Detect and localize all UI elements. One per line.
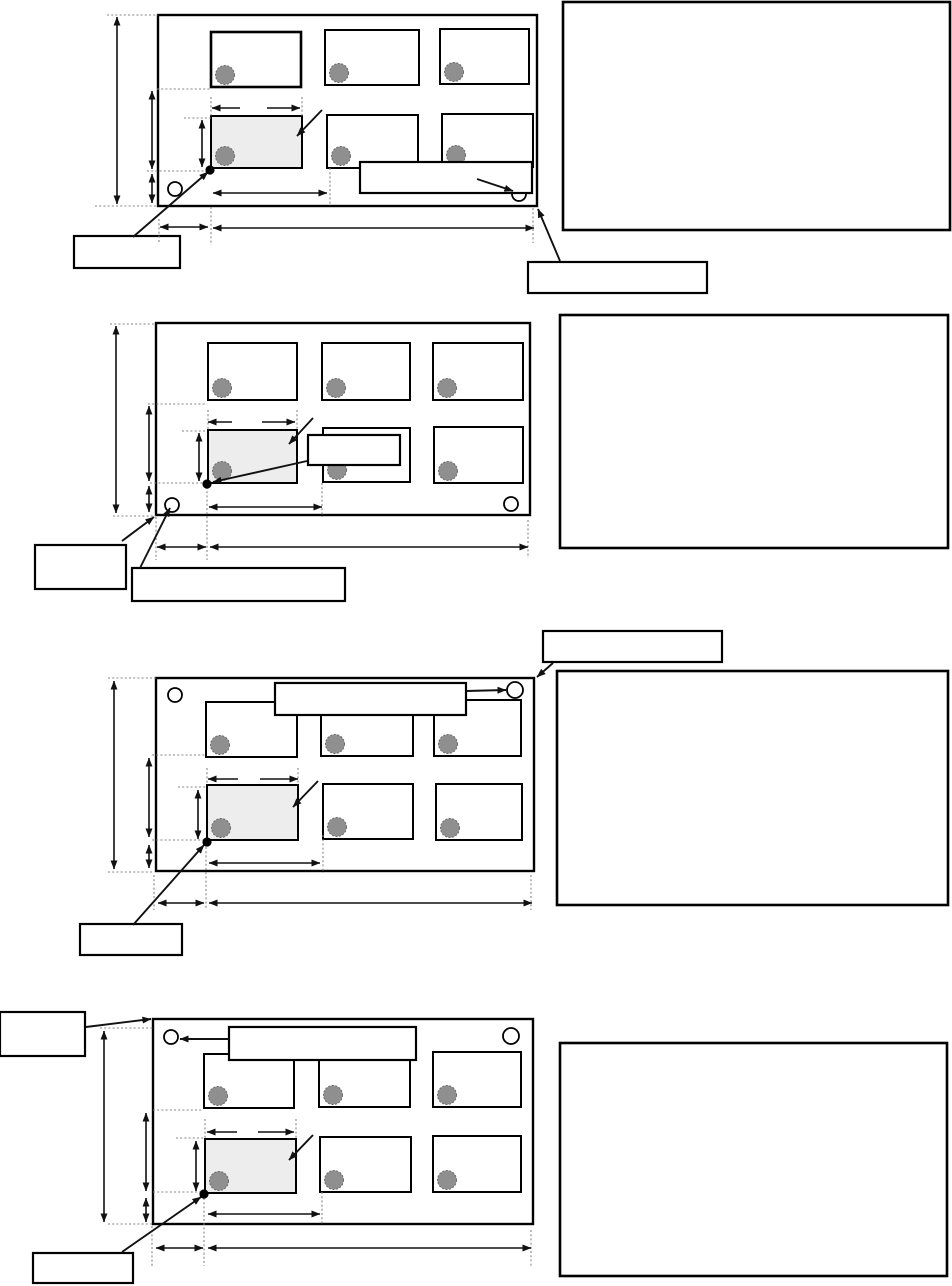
pointer-arrow	[538, 209, 560, 261]
fiducial-dot-icon	[211, 736, 230, 755]
diagram-layers	[0, 2, 950, 1283]
fiducial-dot-icon	[213, 379, 232, 398]
fiducial-dot-icon	[324, 1086, 343, 1105]
tooling-hole-icon	[165, 498, 179, 512]
panel-origin-figure	[0, 0, 952, 1286]
info-box	[563, 2, 950, 230]
info-box	[560, 1043, 947, 1276]
tooling-hole-icon	[168, 688, 182, 702]
fiducial-dot-icon	[445, 63, 464, 82]
pointer-arrow	[466, 690, 506, 691]
callout-box-corner	[35, 545, 126, 589]
callout-box-corner	[0, 1012, 85, 1056]
origin-dot	[205, 165, 214, 174]
fiducial-dot-icon	[438, 1086, 457, 1105]
origin-dot	[202, 479, 211, 488]
tooling-hole-icon	[504, 497, 518, 511]
origin-dot	[202, 837, 211, 846]
callout-box-corner	[543, 631, 722, 662]
fiducial-dot-icon	[328, 818, 347, 837]
fiducial-dot-icon	[212, 819, 231, 838]
document-page	[0, 0, 952, 1286]
pointer-arrow	[86, 1019, 151, 1027]
callout-box-hole	[229, 1027, 416, 1060]
pointer-arrow	[140, 508, 170, 568]
fiducial-dot-icon	[216, 147, 235, 166]
tooling-hole-icon	[503, 1028, 519, 1044]
fiducial-dot-icon	[325, 1171, 344, 1190]
callout-box-origin	[308, 435, 400, 465]
fiducial-dot-icon	[327, 379, 346, 398]
fiducial-dot-icon	[330, 64, 349, 83]
diagram-2	[35, 315, 948, 601]
fiducial-dot-icon	[332, 147, 351, 166]
tooling-hole-icon	[168, 182, 182, 196]
fiducial-dot-icon	[438, 1171, 457, 1190]
fiducial-dot-icon	[439, 462, 458, 481]
pointer-arrow	[122, 517, 154, 541]
callout-box-origin	[74, 236, 180, 268]
callout-box-origin	[80, 924, 182, 955]
diagram-4	[0, 1012, 947, 1283]
origin-dot	[199, 1189, 208, 1198]
diagram-3	[80, 631, 948, 955]
info-box	[560, 315, 948, 548]
fiducial-dot-icon	[438, 379, 457, 398]
tooling-hole-icon	[164, 1030, 178, 1044]
fiducial-dot-icon	[210, 1172, 229, 1191]
callout-box-hole	[132, 568, 345, 601]
callout-box-hole	[275, 683, 466, 715]
diagram-1	[74, 2, 950, 293]
pointer-arrow	[537, 663, 553, 677]
info-box	[557, 671, 948, 905]
tooling-hole-icon	[507, 682, 523, 698]
callout-box-corner	[528, 262, 707, 293]
fiducial-dot-icon	[441, 819, 460, 838]
callout-box-origin	[33, 1253, 133, 1283]
fiducial-dot-icon	[326, 735, 345, 754]
fiducial-dot-icon	[209, 1087, 228, 1106]
fiducial-dot-icon	[216, 66, 235, 85]
fiducial-dot-icon	[439, 735, 458, 754]
